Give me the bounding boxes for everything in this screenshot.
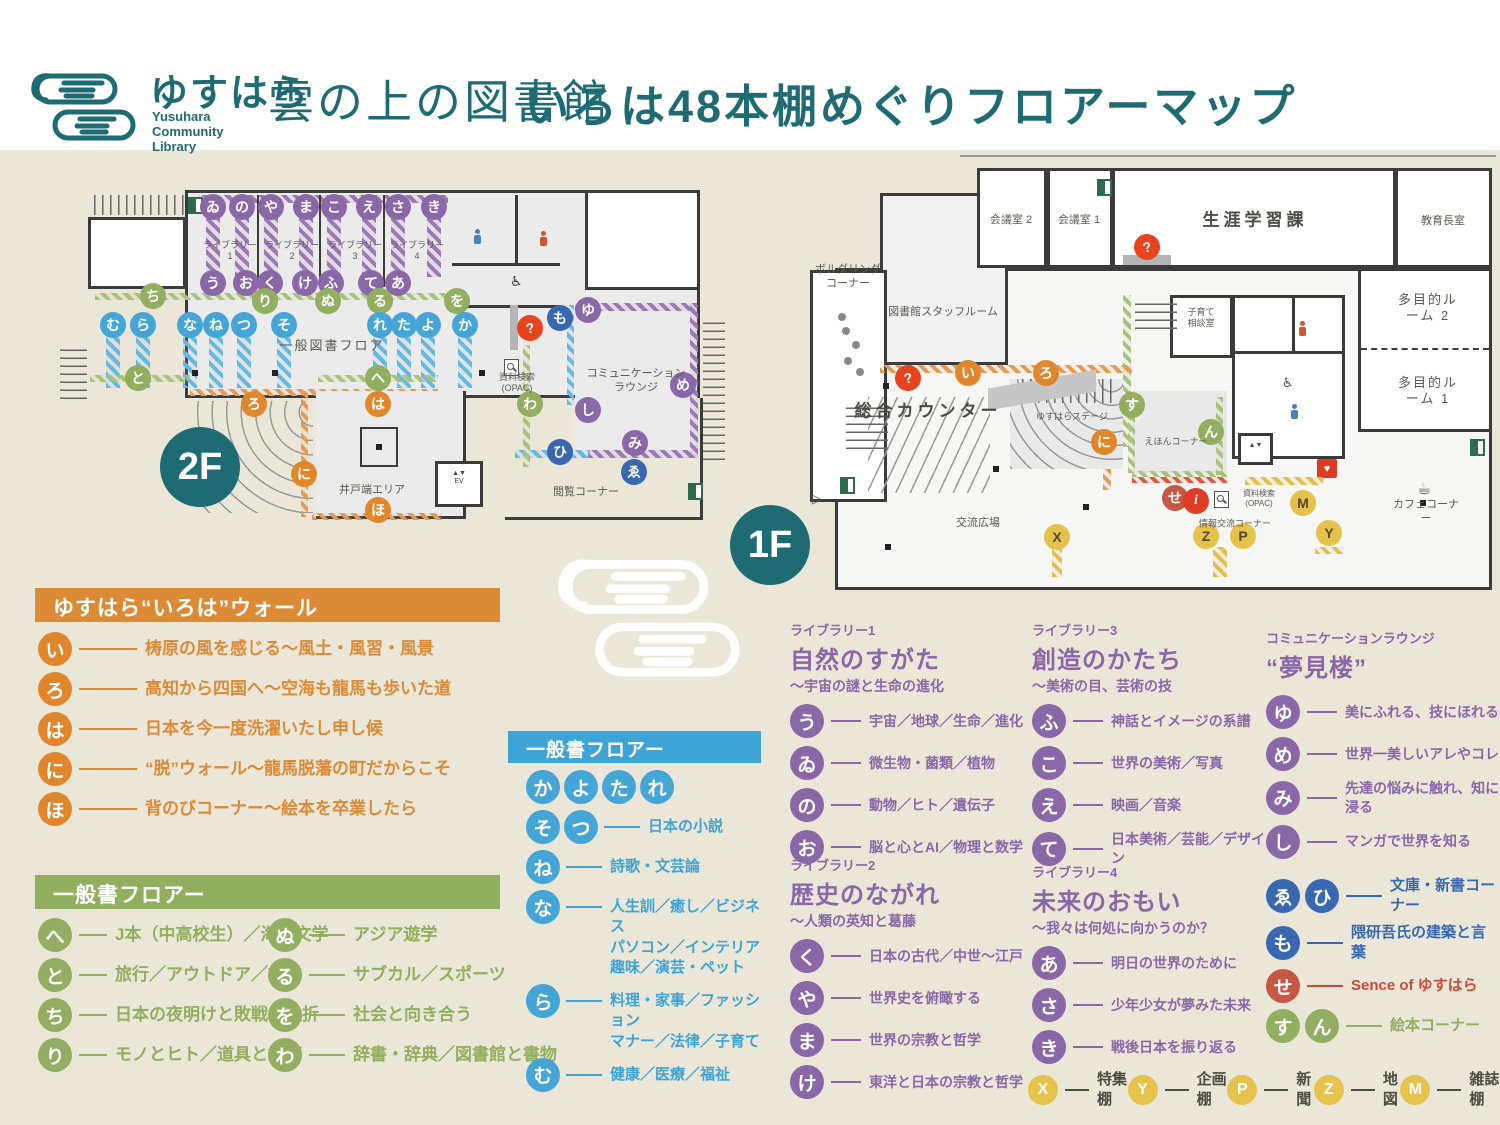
floor-plan-2f: ▲▼EV ♿ 2F ゐのやまこえさきうおくけふてあちりぬるをとへわむらなねつそれ… [60,165,755,577]
shelf-bar [237,332,251,388]
marker-を: を [444,288,470,314]
legend-circle-む: む [526,1058,560,1092]
legend-dash [566,1000,602,1002]
legend-circle-わ: わ [268,1038,302,1072]
wheelchair-icon: ♿ [1282,375,1294,391]
room-label: ボルダリング コーナー [815,263,881,291]
legend-circle-M: M [1400,1075,1430,1105]
legend-circle-ゐ: ゐ [790,746,824,780]
legend-item: い梼原の風を感じる〜風土・風習・風景 [38,632,451,666]
legend-dash [831,1081,861,1083]
legend-circle-Z: Z [1314,1075,1344,1105]
marker-け: け [292,270,318,296]
library-logo-icon [28,62,140,154]
legend-dash [1073,762,1103,764]
exit-icon [840,477,855,494]
legend-dash [1346,895,1382,897]
library-subtitle: 〜宇宙の謎と生命の進化 [790,676,1030,696]
legend-item: ゐ微生物・菌類／植物 [790,746,1030,780]
library-tag: ライブラリー1 [790,620,1030,639]
marker-つ: つ [231,312,257,338]
legend-text: 料理・家事／ファッション マナー／法律／子育て [610,984,766,1052]
legend-circle-や: や [790,981,824,1015]
lounge-legend: コミュニケーションラウンジ “夢見楼” ゆ美にふれる、技にほれるめ世界一美しいア… [1266,628,1500,867]
room-label: 井戸端エリア [339,484,405,498]
legend-text: 隈研吾氏の建築と言葉 [1351,923,1500,964]
male-toilet-icon [472,229,482,244]
legend-circle-け: け [790,1065,824,1099]
library-title: 歴史のながれ [790,875,1030,910]
room-label: 生涯学習課 [1203,209,1308,230]
legend-text: 人生訓／癒し／ビジネス パソコン／インテリア 趣味／演芸・ペット [610,890,766,978]
legend-circle-か: か [526,770,560,804]
legend-text: 微生物・菌類／植物 [869,754,995,773]
1f-red-shelf-wall [1132,477,1227,483]
aed-icon: ♥ [1317,459,1337,478]
marker-や: や [258,194,284,220]
marker-さ: さ [385,194,411,220]
marker-こ: こ [321,194,347,220]
legend-circle-る: る [268,958,302,992]
room-label: ライブラリー 3 [328,240,382,263]
legend-circle-あ: あ [1032,946,1066,980]
floor-plan-1f: ♿ ♥ ▲▼ ☕ ▷ ??いろにすんせiMXZPYボルダリング コーナー図書館ス… [810,155,1500,607]
library-subtitle: 〜我々は何処に向かうのか？ [1032,918,1266,938]
marker-M: M [1290,490,1316,516]
legend-item: わ辞書・辞典／図書館と書物 [268,1038,557,1072]
legend-text: 美にふれる、技にほれる [1345,703,1499,722]
legend-item: を社会と向き合う [268,998,557,1032]
legend-dash [1073,962,1103,964]
legend-text: 脳と心とAI／物理と数学 [869,838,1023,857]
legend-text: 宇宙／地球／生命／進化 [869,712,1023,731]
1f-stairs [1135,297,1177,329]
legend-circle-の: の [790,788,824,822]
marker-ひ: ひ [547,439,573,465]
marker-か: か [452,312,478,338]
room-label: えほんコーナー [1144,436,1207,447]
legend-text: アジア遊学 [353,924,437,947]
legend-item: せSence of ゆすはら [1266,969,1500,1003]
legend-circle-X: X [1028,1075,1058,1105]
marker-ろ: ろ [1033,360,1059,386]
legend-text: 戦後日本を振り返る [1111,1038,1237,1057]
legend-circle-ふ: ふ [1032,704,1066,738]
library-title: 未来のおもい [1032,882,1266,917]
room-label: 交流広場 [956,517,1000,531]
legend-dash [831,955,861,957]
legend-dash [831,997,861,999]
legend-dash [1073,1046,1103,1048]
marker-X: X [1044,524,1070,550]
marker-ゑ: ゑ [621,459,647,485]
legend-dash [1264,1089,1288,1091]
legend-text: 日本を今一度洗濯いたし申し候 [145,718,383,741]
legend-circle-と: と [38,958,72,992]
marker-よ: よ [415,312,441,338]
flying-books-watermark [545,540,755,700]
legend-circle-ほ: ほ [38,792,72,826]
library-subtitle: 〜人類の英知と葛藤 [790,911,1030,931]
legend-dash [79,808,137,810]
legend-item: P新聞 [1227,1070,1314,1111]
legend-text: サブカル／スポーツ [353,964,506,987]
library-3-legend: ライブラリー3 創造のかたち 〜美術の目、芸術の技 ふ神話とイメージの系譜こ世界… [1032,620,1266,876]
legend-item: の動物／ヒト／遺伝子 [790,788,1030,822]
library-tag: ライブラリー4 [1032,862,1266,881]
legend-item: も隈研吾氏の建築と言葉 [1266,923,1500,964]
library-4-legend: ライブラリー4 未来のおもい 〜我々は何処に向かうのか？ あ明日の世界のためにさ… [1032,862,1266,1072]
marker-も: も [547,305,573,331]
1f-news-map-shelf [1213,547,1227,577]
header: ゆすはら Yusuhara Community Library 雲の上の図書館 … [0,0,1500,150]
legend-text: “脱”ウォール〜龍馬脱藩の町だからこそ [145,758,451,781]
legend-circle-に: に [38,752,72,786]
legend-dash [1307,841,1337,843]
elevator-icon: ▲▼EV [438,464,480,485]
page-title: いろは48本棚めぐりフロアーマップ [524,70,1297,135]
1f-elevator: ▲▼ [1238,433,1273,465]
marker-み: み [622,430,648,456]
marker-そ: そ [271,312,297,338]
legend-text: 梼原の風を感じる〜風土・風習・風景 [145,638,434,661]
2f-stairs-right [703,320,725,460]
room-label: 総合カウンター [855,400,1002,421]
legend-dash [79,768,137,770]
legend-item: X特集棚 [1028,1070,1128,1111]
room-label: ゆすはらステージ [1036,411,1108,422]
marker-i: i [1183,488,1209,514]
legend-dash [1073,720,1103,722]
floor-badge-2f: 2F [160,427,240,507]
marker-り: り [252,288,278,314]
legend-dash [1073,1004,1103,1006]
legend-circle-す: す [1266,1009,1300,1043]
legend-dash [1346,1025,1382,1027]
legend-dash [831,846,861,848]
legend-item: は日本を今一度洗濯いたし申し候 [38,712,451,746]
legend-circle-な: な [526,890,560,924]
room-label: ライブラリー 1 [203,240,257,263]
marker-の: の [229,194,255,220]
marker-へ: へ [365,365,391,391]
library-title: 創造のかたち [1032,640,1266,675]
legend-circle-れ: れ [640,770,674,804]
legend-dash [831,1039,861,1041]
room-label: 子育て 相談室 [1187,307,1214,330]
legend-circle-ひ: ひ [1305,879,1339,913]
legend-item: M雑誌棚 [1400,1070,1500,1111]
legend-circle-も: も [1266,926,1300,960]
room-label: 閲覧コーナー [553,486,619,500]
shelf-bar [209,332,223,388]
legend-text: 地図 [1383,1070,1401,1111]
legend-circle-ね: ね [526,850,560,884]
legend-circle-き: き [1032,1030,1066,1064]
legend-circle-よ: よ [564,770,598,804]
coffee-icon: ☕ [1417,479,1431,499]
2f-void [585,193,697,290]
marker-し: し [575,397,601,423]
legend-circle-へ: へ [38,918,72,952]
marker-い: い [955,360,981,386]
marker-Y: Y [1316,520,1342,546]
general-books-green-right: ぬアジア遊学るサブカル／スポーツを社会と向き合うわ辞書・辞典／図書館と書物 [268,918,557,1078]
legend-circle-う: う [790,704,824,738]
marker-ゐ: ゐ [200,194,226,220]
legend-dash [566,906,602,908]
legend-text: 明日の世界のために [1111,954,1237,973]
legend-circle-い: い [38,632,72,666]
legend-item: あ明日の世界のために [1032,946,1266,980]
legend-text: マンガで世界を知る [1345,832,1471,851]
general-books-blue-title: 一般書フロアー [508,731,761,763]
2f-stairs-left [60,343,87,399]
legend-dash [1307,753,1337,755]
legend-circle-め: め [1266,737,1300,771]
room-label: 会議室 1 [1058,214,1100,228]
legend-circle-ろ: ろ [38,672,72,706]
legend-item: な人生訓／癒し／ビジネス パソコン／インテリア 趣味／演芸・ペット [526,890,766,978]
legend-item: ね詩歌・文芸論 [526,850,766,884]
opac-search-icon [1214,491,1229,508]
legend-item: るサブカル／スポーツ [268,958,557,992]
legend-circle-て: て [1032,832,1066,866]
lounge-tag: コミュニケーションラウンジ [1266,628,1500,647]
marker-れ: れ [367,312,393,338]
room-label: カフェコーナー [1389,498,1463,526]
legend-circle-こ: こ [1032,746,1066,780]
legend-dash [1351,1089,1375,1091]
exit-icon [1470,439,1485,456]
iroha-wall-legend: い梼原の風を感じる〜風土・風習・風景ろ高知から四国へ〜空海も龍馬も歩いた道は日本… [38,632,451,832]
legend-item: や世界史を俯瞰する [790,981,1030,1015]
marker-る: る [367,288,393,314]
legend-item: ほ背のびコーナー〜絵本を卒業したら [38,792,451,826]
library-1-legend: ライブラリー1 自然のすがた 〜宇宙の謎と生命の進化 う宇宙／地球／生命／進化ゐ… [790,620,1030,872]
marker-に: に [291,461,317,487]
legend-dash [1165,1089,1189,1091]
legend-dash [309,1054,345,1056]
legend-dash [831,762,861,764]
legend-circle-ち: ち [38,998,72,1032]
legend-circle-そ: そ [526,810,560,844]
room-label: 多目的ルーム 1 [1392,375,1464,408]
legend-text: 高知から四国へ〜空海も龍馬も歩いた道 [145,678,451,701]
legend-dash [831,720,861,722]
legend-text: 特集棚 [1097,1070,1128,1111]
shelf-type-legend: X特集棚Y企画棚P新聞Z地図M雑誌棚 [1028,1070,1500,1117]
marker-ま: ま [293,194,319,220]
2f-stairs-top [94,195,184,215]
legend-text: 世界の美術／写真 [1111,754,1223,773]
legend-dash [1307,797,1337,799]
climbing-holds-icon [838,313,846,321]
general-books-green-title: 一般書フロアー [35,875,500,909]
legend-text: 日本の小説 [648,810,723,837]
marker-す: す [1119,392,1145,418]
exit-icon [688,483,703,500]
room-label: 資料検索 (OPAC) [499,372,535,395]
legend-item: ぬアジア遊学 [268,918,557,952]
room-label: 図書館スタッフルーム [888,306,998,320]
legend-dash [604,826,640,828]
legend-text: 世界史を俯瞰する [869,989,981,1008]
legend-dash [1073,848,1103,850]
marker-ぬ: ぬ [315,288,341,314]
legend-item: う宇宙／地球／生命／進化 [790,704,1030,738]
room-label: 会議室 2 [990,214,1032,228]
legend-text: 雑誌棚 [1469,1070,1500,1111]
legend-text: Sence of ゆすはら [1351,976,1478,996]
legend-item: こ世界の美術／写真 [1032,746,1266,780]
legend-circle-く: く [790,939,824,973]
marker-ろ: ろ [241,391,267,417]
legend-text: 健康／医療／福祉 [610,1058,730,1085]
legend-dash [1065,1089,1089,1091]
legend-item: く日本の古代／中世〜江戸 [790,939,1030,973]
room-label: コミュニケーション ラウンジ [587,367,686,395]
marker-む: む [100,312,126,338]
legend-text: 神話とイメージの系譜 [1111,712,1251,731]
room-label: ライブラリー 2 [265,240,319,263]
general-books-blue-legend: かよたれそつ日本の小説ね詩歌・文芸論な人生訓／癒し／ビジネス パソコン／インテリ… [526,770,766,1098]
library-tag: ライブラリー3 [1032,620,1266,639]
legend-item: Y企画棚 [1128,1070,1228,1111]
legend-dash [831,804,861,806]
room-label: 資料検索 (OPAC) [1243,489,1275,509]
floor-map-poster: { "header": { "brand_jp": "ゆすはら", "brand… [0,0,1500,1125]
legend-item: め世界一美しいアレやコレ [1266,737,1500,771]
legend-text: 日本の古代／中世〜江戸 [869,947,1023,966]
legend-text: 先達の悩みに触れ、知に浸る [1345,779,1500,817]
legend-item: き戦後日本を振り返る [1032,1030,1266,1064]
marker-ほ: ほ [365,497,391,523]
legend-item: け東洋と日本の宗教と哲学 [790,1065,1030,1099]
legend-item: ら料理・家事／ファッション マナー／法律／子育て [526,984,766,1052]
lounge-title: “夢見楼” [1266,648,1500,683]
legend-dash [79,1054,107,1056]
legend-text: 文庫・新書コーナー [1390,876,1500,917]
2f-room [88,217,186,289]
legend-circle-ら: ら [526,984,560,1018]
legend-item: え映画／音楽 [1032,788,1266,822]
exit-icon [1097,179,1112,196]
library-subtitle: 〜美術の目、芸術の技 [1032,676,1266,696]
2f-elevator: ▲▼EV [435,461,483,507]
legend-circle-し: し [1266,825,1300,859]
legend-circle-P: P [1227,1075,1257,1105]
legend-item: Z地図 [1314,1070,1401,1111]
marker-ね: ね [203,312,229,338]
library-title: 自然のすがた [790,640,1030,675]
legend-text: 社会と向き合う [353,1004,472,1027]
male-toilet-icon [1289,404,1299,419]
legend-dash [79,934,107,936]
legend-dash [566,866,602,868]
room-label: 教育長室 [1421,215,1465,229]
legend-item: ふ神話とイメージの系譜 [1032,704,1266,738]
legend-item: ゑひ文庫・新書コーナー [1266,876,1500,917]
legend-dash [1307,942,1343,944]
legend-dash [1437,1089,1461,1091]
legend-dash [1307,985,1343,987]
legend-circle-り: り [38,1038,72,1072]
legend-circle-ま: ま [790,1023,824,1057]
legend-item: さ少年少女が夢みた未来 [1032,988,1266,1022]
legend-text: 絵本コーナー [1390,1016,1480,1036]
marker-と: と [125,365,151,391]
room-label: 多目的ルーム 2 [1392,292,1464,325]
library-tag: ライブラリー2 [790,855,1030,874]
legend-circle-つ: つ [564,810,598,844]
legend-dash [79,728,137,730]
female-toilet-icon [538,231,548,246]
1f-room-divider [1361,348,1489,350]
legend-item: かよたれ [526,770,766,804]
legend-text: 世界の宗教と哲学 [869,1031,981,1050]
marker-ち: ち [140,283,166,309]
1f-plan-shelf [1315,547,1343,554]
marker-き: き [421,194,447,220]
legend-circle-せ: せ [1266,969,1300,1003]
shelf-bar [458,332,472,388]
legend-circle-み: み [1266,781,1300,815]
legend-text: 詩歌・文芸論 [610,850,700,877]
legend-dash [309,934,345,936]
legend-item: しマンガで世界を知る [1266,825,1500,859]
legend-dash [309,1014,345,1016]
marker-わ: わ [517,391,543,417]
legend-dash [309,974,345,976]
room-label: ライブラリー 4 [390,240,444,263]
library-2-legend: ライブラリー2 歴史のながれ 〜人類の英知と葛藤 く日本の古代／中世〜江戸や世界… [790,855,1030,1107]
female-toilet-icon [1297,321,1307,336]
legend-circle-Y: Y [1128,1075,1158,1105]
legend-circle-ん: ん [1305,1009,1339,1043]
legend-text: 動物／ヒト／遺伝子 [869,796,995,815]
legend-dash [1073,804,1103,806]
legend-item: そつ日本の小説 [526,810,766,844]
legend-dash [79,648,137,650]
legend-dash [79,688,137,690]
marker-た: た [391,312,417,338]
marker-は: は [365,391,391,417]
legend-item: ゆ美にふれる、技にほれる [1266,695,1500,729]
legend-item: ろ高知から四国へ〜空海も龍馬も歩いた道 [38,672,451,706]
room-label: 一般図書フロア [279,338,384,354]
elevator-icon: ▲▼ [1241,436,1270,450]
misc-corners-legend: ゑひ文庫・新書コーナーも隈研吾氏の建築と言葉せSence of ゆすはらすん絵本… [1266,876,1500,1049]
legend-text: 少年少女が夢みた未来 [1111,996,1251,1015]
legend-circle-ゆ: ゆ [1266,695,1300,729]
marker-ゆ: ゆ [575,297,601,323]
legend-circle-た: た [602,770,636,804]
legend-text: 東洋と日本の宗教と哲学 [869,1073,1023,1092]
legend-dash [79,974,107,976]
marker-な: な [177,312,203,338]
iroha-wall-section-title: ゆすはら“いろは”ウォール [35,588,500,622]
legend-item: に“脱”ウォール〜龍馬脱藩の町だからこそ [38,752,451,786]
legend-item: み先達の悩みに触れ、知に浸る [1266,779,1500,817]
legend-circle-を: を [268,998,302,1032]
wheelchair-icon: ♿ [510,273,523,290]
marker-ら: ら [130,312,156,338]
legend-dash [566,1074,602,1076]
2f-iroha-wall [301,391,308,517]
marker-に: に [1091,429,1117,455]
legend-text: 背のびコーナー〜絵本を卒業したら [145,798,417,821]
